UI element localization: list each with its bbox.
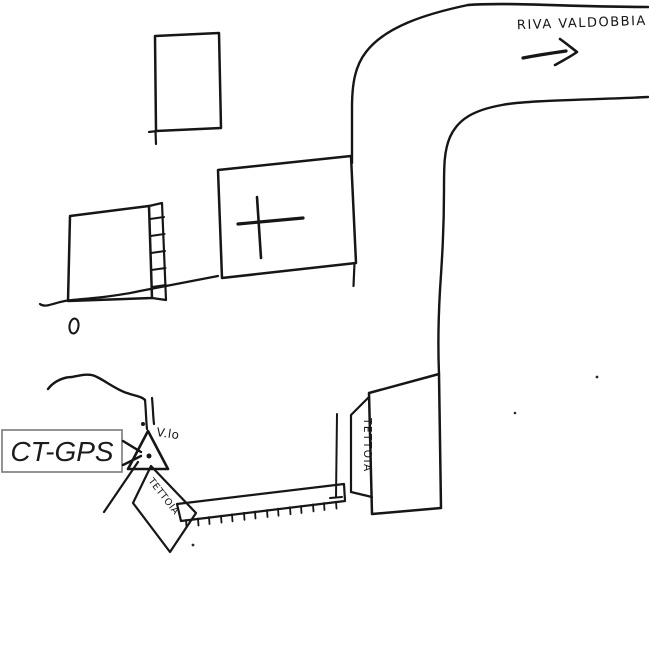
cross-icon [238, 197, 303, 258]
station-area: V.lo CT-GPS [2, 398, 180, 472]
road-inner-curve [438, 97, 648, 374]
road-outer-curve [352, 5, 468, 163]
building-left [68, 203, 166, 301]
direction-arrow-icon [523, 39, 577, 65]
building-church [218, 156, 356, 286]
canopy-right-label: TETTOIA [361, 417, 373, 473]
canopy-left: TETTOIA [104, 462, 196, 552]
sketch-map: TETTOIA TETTOIA V.lo [0, 0, 649, 649]
alley-label: V.lo [156, 425, 181, 442]
station-label: CT-GPS [10, 436, 114, 467]
street-edge-left [40, 276, 218, 306]
paper-specks [192, 376, 599, 547]
alley-junction-dot [141, 422, 145, 426]
ticked-walkway [177, 484, 345, 527]
road-top-edge [468, 4, 648, 7]
survey-sketch-page: TETTOIA TETTOIA V.lo [0, 0, 649, 649]
walkway-ticks [186, 502, 337, 527]
alley-lines [145, 398, 154, 429]
building-right [369, 374, 441, 514]
station-point-dot [147, 454, 152, 459]
station-label-box: CT-GPS [2, 430, 141, 472]
destination-label: RIVA VALDOBBIA [517, 14, 647, 34]
canopy-right: TETTOIA [330, 397, 373, 498]
street-edge-lower [48, 375, 145, 400]
buildings: TETTOIA TETTOIA [68, 33, 441, 552]
destination: RIVA VALDOBBIA [517, 14, 647, 65]
small-circle-mark [68, 318, 79, 334]
canopy-left-label: TETTOIA [145, 475, 181, 517]
building-top-left [149, 33, 221, 144]
